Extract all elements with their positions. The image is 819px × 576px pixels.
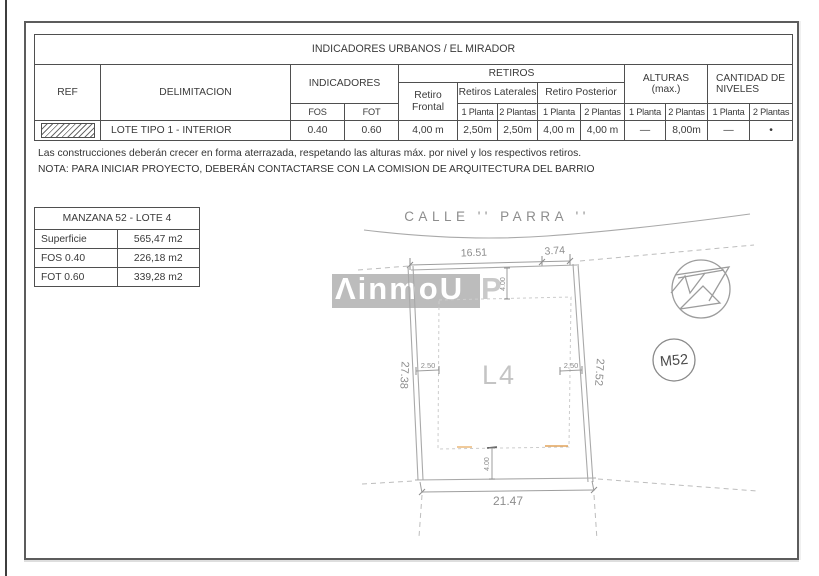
header-fot: FOT [345,104,399,121]
site-plan-drawing: CALLE '' PARRA '' 16.51 3.74 [352,192,802,552]
lot-table-title: MANZANA 52 - LOTE 4 [35,208,200,230]
dim-right-depth: 27.52 [592,358,606,386]
lot-row-label: FOS 0.40 [35,249,118,268]
header-cantidad-line2: NIVELES [716,84,759,95]
dim-setback-right: 2,50 [564,361,579,370]
dim-front-width: 16.51 [461,247,488,260]
right-setback-dimension: 2,50 [560,361,582,375]
header-fos: FOS [291,104,345,121]
lot-summary-table: MANZANA 52 - LOTE 4 Superficie 565,47 m2… [34,207,200,287]
cell-altura-1p: — [625,121,666,141]
urban-indicators-table: INDICADORES URBANOS / EL MIRADOR REF DEL… [34,34,793,141]
header-lat-2plantas: 2 Plantas [498,104,538,121]
header-niv-2plantas: 2 Plantas [750,104,793,121]
header-ref: REF [35,65,101,121]
plan-page: INDICADORES URBANOS / EL MIRADOR REF DEL… [24,21,799,560]
header-niv-1planta: 1 Planta [708,104,750,121]
cell-ret-post-1p: 4,00 m [538,121,581,141]
document-sheet: INDICADORES URBANOS / EL MIRADOR REF DEL… [0,0,819,576]
cell-fot: 0.60 [345,121,399,141]
table-title: INDICADORES URBANOS / EL MIRADOR [35,35,793,65]
header-retiros: RETIROS [399,65,625,83]
header-alturas-line2: (max.) [652,84,681,95]
header-retiros-laterales: Retiros Laterales [458,83,538,104]
header-alturas-line1: ALTURAS [643,73,689,84]
header-alturas: ALTURAS (max.) [625,65,708,104]
cell-ret-post-2p: 4,00 m [581,121,625,141]
developer-logo-icon [671,260,730,318]
header-retiro-frontal: Retiro Frontal [399,83,458,121]
header-indicadores: INDICADORES [291,65,399,104]
note-architecture-commission: NOTA: PARA INICIAR PROYECTO, DEBERÁN CON… [38,164,595,175]
ref-swatch-cell [35,121,101,141]
dim-front-chamfer: 3.74 [544,244,565,257]
cell-altura-2p: 8,00m [666,121,708,141]
header-alt-2plantas: 2 Plantas [666,104,708,121]
rear-setback-dimension: 4.00 [484,448,495,479]
dim-setback-rear: 4.00 [484,457,491,471]
scan-edge-line [5,0,7,576]
header-cantidad-line1: CANTIDAD DE [716,73,785,84]
lot-row-value: 226,18 m2 [117,249,200,268]
street-name-label: CALLE '' PARRA '' [404,209,590,224]
lot-row-label: Superficie [35,230,118,249]
lot-row-value: 339,28 m2 [117,268,200,287]
cell-ret-lat-1p: 2,50m [458,121,498,141]
lot-row-value: 565,47 m2 [117,230,200,249]
table-row: FOT 0.60 339,28 m2 [35,268,200,287]
cell-retiro-frontal: 4,00 m [399,121,458,141]
lot-number-label: L4 [482,360,516,390]
alignment-dash-right [580,245,754,261]
cell-ret-lat-2p: 2,50m [498,121,538,141]
block-badge: M52 [653,339,695,381]
block-badge-label: M52 [659,352,689,370]
cell-niveles-2p: • [750,121,793,141]
table-row: FOS 0.40 226,18 m2 [35,249,200,268]
hatch-swatch-icon [41,123,95,138]
cell-niveles-1p: — [708,121,750,141]
header-post-1planta: 1 Planta [538,104,581,121]
header-retiro-posterior: Retiro Posterior [538,83,625,104]
rear-dimension: 21.47 [419,481,597,540]
dim-setback-left: 2.50 [421,361,436,370]
table-row: Superficie 565,47 m2 [35,230,200,249]
alignment-dash-left [358,266,409,270]
note-terraced-construction: Las construcciones deberán crecer en for… [38,148,581,159]
cell-fos: 0.40 [291,121,345,141]
dim-left-depth: 27.38 [397,361,410,389]
rear-dash-left [362,481,414,484]
header-delimitacion: DELIMITACION [101,65,291,121]
header-cantidad-niveles: CANTIDAD DE NIVELES [708,65,793,104]
rear-dash-right [598,479,757,491]
front-setback-dimension: 4.00 [500,268,510,299]
header-lat-1planta: 1 Planta [458,104,498,121]
dim-rear-width: 21.47 [493,494,523,508]
header-post-2plantas: 2 Plantas [581,104,625,121]
lot-row-label: FOT 0.60 [35,268,118,287]
cell-delimitacion: LOTE TIPO 1 - INTERIOR [101,121,291,141]
dim-setback-front: 4.00 [500,277,507,291]
left-setback-dimension: 2.50 [416,361,439,375]
header-alt-1planta: 1 Planta [625,104,666,121]
